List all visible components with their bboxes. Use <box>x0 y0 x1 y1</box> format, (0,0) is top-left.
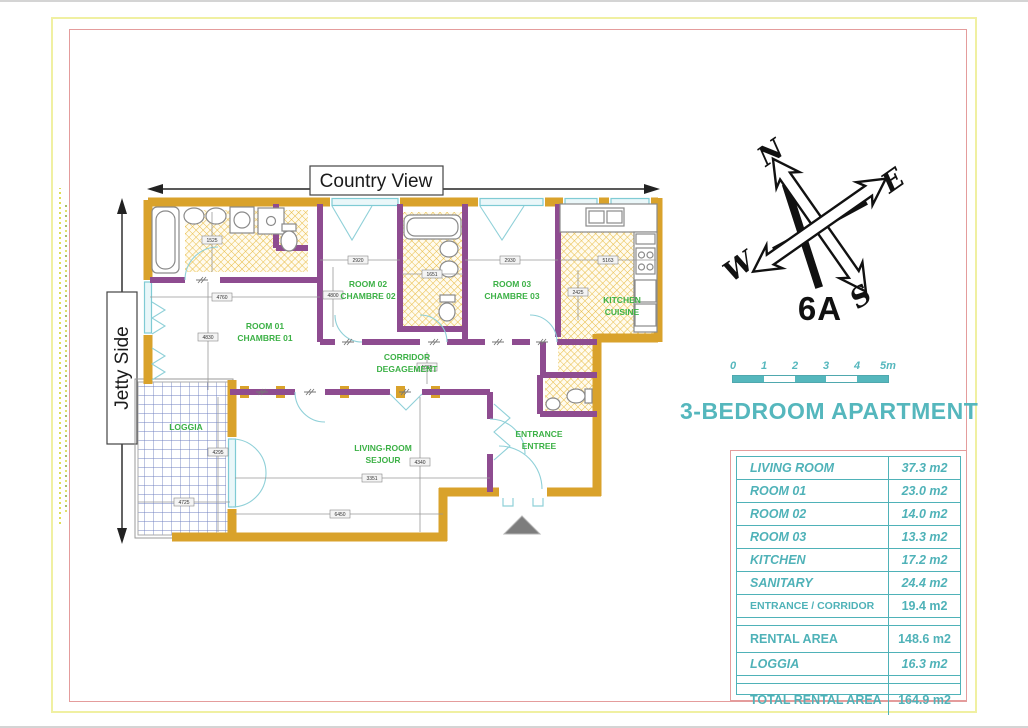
svg-text:DEGAGEMENT: DEGAGEMENT <box>377 364 439 374</box>
table-row: KITCHEN17.2 m2 <box>737 548 960 571</box>
table-spacer-row <box>737 675 960 683</box>
table-row: ROOM 0123.0 m2 <box>737 479 960 502</box>
svg-text:2930: 2930 <box>504 258 515 264</box>
svg-text:3351: 3351 <box>366 476 377 482</box>
svg-text:CHAMBRE 03: CHAMBRE 03 <box>484 291 540 301</box>
scale-tick: 3 <box>823 360 829 372</box>
floor-plan-sheet: Country View Jetty Side <box>0 0 1028 728</box>
scale-tick: 1 <box>761 360 767 372</box>
unit-number: 6A <box>760 290 880 328</box>
scale-tick: 5m <box>880 360 896 372</box>
country-view-arrow: Country View <box>147 166 660 195</box>
table-row: ROOM 0214.0 m2 <box>737 502 960 525</box>
svg-text:CUISINE: CUISINE <box>605 307 640 317</box>
table-row: LOGGIA16.3 m2 <box>737 652 960 675</box>
scale-tick: 0 <box>730 360 736 372</box>
svg-text:4760: 4760 <box>216 295 227 301</box>
table-row: RENTAL AREA148.6 m2 <box>737 625 960 652</box>
room-01-label: ROOM 01 <box>246 321 285 331</box>
area-table-wrapper: LIVING ROOM37.3 m2 ROOM 0123.0 m2 ROOM 0… <box>730 450 967 701</box>
svg-text:4340: 4340 <box>414 460 425 466</box>
kitchen-label: KITCHEN <box>603 295 641 305</box>
scale-bar-segments <box>732 375 889 383</box>
scale-tick: 4 <box>854 360 860 372</box>
table-row: TOTAL RENTAL AREA164.9 m2 <box>737 683 960 715</box>
entrance-marker-triangle <box>504 516 540 534</box>
svg-text:2425: 2425 <box>572 290 583 296</box>
table-row: LIVING ROOM37.3 m2 <box>737 457 960 479</box>
compass-east: E <box>875 162 911 200</box>
table-spacer-row <box>737 617 960 625</box>
svg-text:1525: 1525 <box>206 238 217 244</box>
svg-text:6450: 6450 <box>334 512 345 518</box>
room-03-label: ROOM 03 <box>493 279 532 289</box>
svg-text:2920: 2920 <box>352 258 363 264</box>
floor-plan-drawing: Country View Jetty Side <box>90 152 680 567</box>
living-room-label: LIVING-ROOM <box>354 443 412 453</box>
compass-west: W <box>718 244 763 288</box>
svg-text:CHAMBRE 01: CHAMBRE 01 <box>237 333 293 343</box>
scale-tick: 2 <box>792 360 798 372</box>
svg-text:4295: 4295 <box>212 450 223 456</box>
table-row: ROOM 0313.3 m2 <box>737 525 960 548</box>
svg-text:4725: 4725 <box>178 500 189 506</box>
svg-text:ENTREE: ENTREE <box>522 441 557 451</box>
entrance-label: ENTRANCE <box>515 429 563 439</box>
table-row: ENTRANCE / CORRIDOR19.4 m2 <box>737 594 960 617</box>
svg-text:CHAMBRE 02: CHAMBRE 02 <box>340 291 396 301</box>
svg-text:4800: 4800 <box>327 293 338 299</box>
corridor-label: CORRIDOR <box>384 352 430 362</box>
svg-text:5163: 5163 <box>602 258 613 264</box>
svg-text:1651: 1651 <box>426 272 437 278</box>
fine-print-vertical-text <box>59 188 61 524</box>
loggia-label: LOGGIA <box>169 422 203 432</box>
entrance-door-opening <box>499 486 547 498</box>
fine-print-vertical-text <box>65 202 67 512</box>
svg-text:SEJOUR: SEJOUR <box>366 455 401 465</box>
svg-text:4830: 4830 <box>202 335 213 341</box>
room-02-label: ROOM 02 <box>349 279 388 289</box>
jetty-side-label: Jetty Side <box>112 326 133 409</box>
area-table: LIVING ROOM37.3 m2 ROOM 0123.0 m2 ROOM 0… <box>736 456 961 695</box>
scale-bar: 0 1 2 3 4 5m <box>728 360 898 390</box>
country-view-label: Country View <box>320 171 433 192</box>
page-title: 3-BEDROOM APARTMENT <box>680 398 970 425</box>
table-row: SANITARY24.4 m2 <box>737 571 960 594</box>
jetty-side-arrow: Jetty Side <box>107 198 137 544</box>
